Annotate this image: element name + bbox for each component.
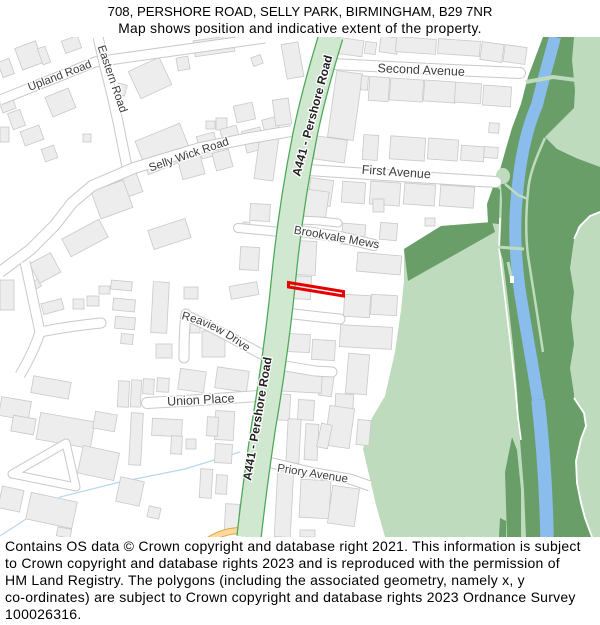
svg-text:Second Avenue: Second Avenue (377, 61, 465, 79)
svg-text:Union Place: Union Place (167, 391, 235, 409)
